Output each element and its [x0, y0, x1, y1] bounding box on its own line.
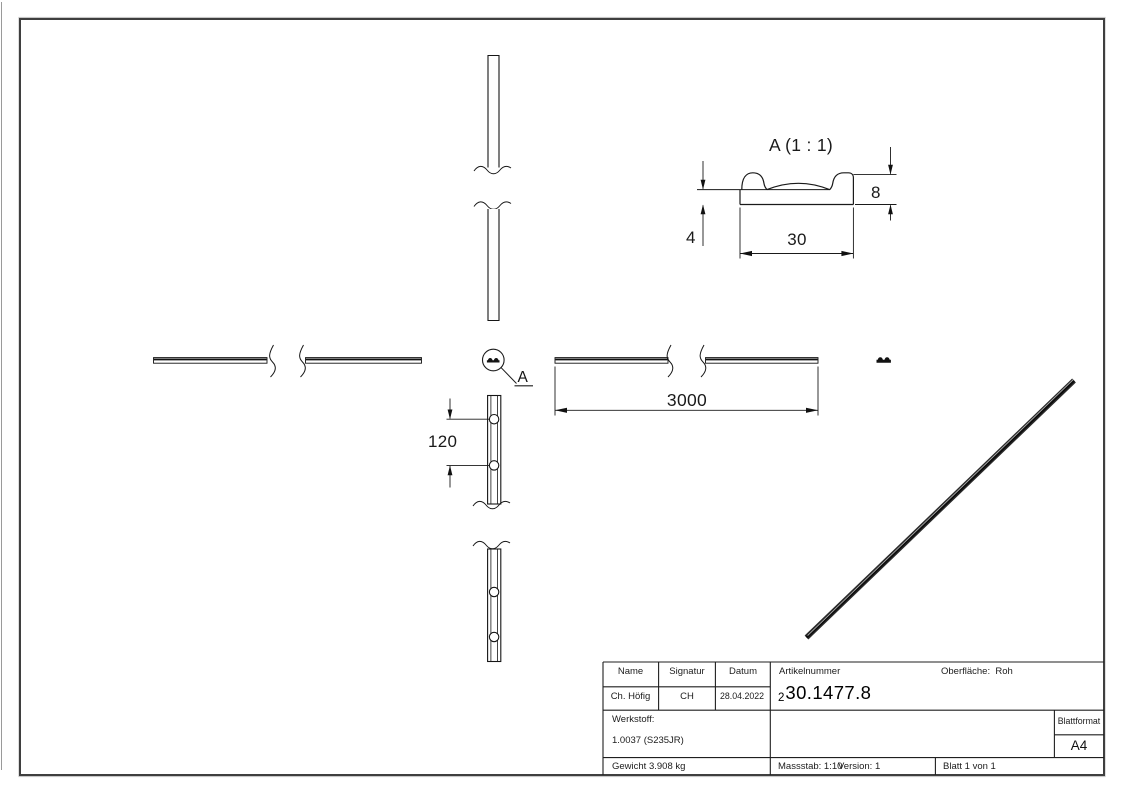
oberflaeche-label-text: Oberfläche:	[941, 666, 990, 677]
title-block-name-value: Ch. Höfig	[603, 692, 658, 702]
dim-8-text: 8	[871, 184, 881, 203]
oberflaeche-value: Roh	[995, 666, 1012, 677]
sheet-frame	[19, 18, 1105, 777]
blattformat-label: Blattformat	[1054, 717, 1104, 727]
dim-30-text: 30	[781, 231, 813, 250]
hole	[489, 415, 498, 424]
detail-marker-label: A	[518, 369, 528, 386]
drawing-sheet: A (1 : 1) 8 4 30 3000 120 A Name Signatu…	[0, 0, 1123, 794]
title-block-datum-label: Datum	[716, 667, 770, 677]
dim-120-text: 120	[428, 433, 457, 452]
hole	[489, 587, 498, 596]
title-block-datum-value: 28.04.2022	[714, 692, 770, 702]
artikelnummer-value: 230.1477.8	[778, 683, 871, 703]
werkstoff-label: Werkstoff:	[612, 715, 654, 725]
blatt-text: Blatt 1 von 1	[943, 762, 996, 772]
title-block-signatur-value: CH	[659, 692, 715, 702]
artikelnummer-number: 30.1477.8	[785, 683, 871, 703]
oberflaeche-label: Oberfläche: Roh	[941, 667, 1013, 677]
massstab-text: Massstab: 1:10	[778, 762, 842, 772]
title-block-name-label: Name	[603, 667, 658, 677]
hole	[489, 461, 498, 470]
detail-view-title: A (1 : 1)	[756, 136, 846, 155]
artikelnummer-label: Artikelnummer	[779, 667, 840, 677]
title-block-signatur-label: Signatur	[659, 667, 715, 677]
artikelnummer-prefix: 2	[778, 692, 784, 705]
blattformat-value: A4	[1054, 739, 1104, 754]
dim-3000-text: 3000	[659, 391, 715, 410]
hole	[489, 632, 498, 641]
version-text: Version: 1	[838, 762, 880, 772]
werkstoff-value: 1.0037 (S235JR)	[612, 736, 684, 746]
gewicht-text: Gewicht 3.908 kg	[612, 762, 685, 772]
dim-4-text: 4	[686, 229, 696, 248]
